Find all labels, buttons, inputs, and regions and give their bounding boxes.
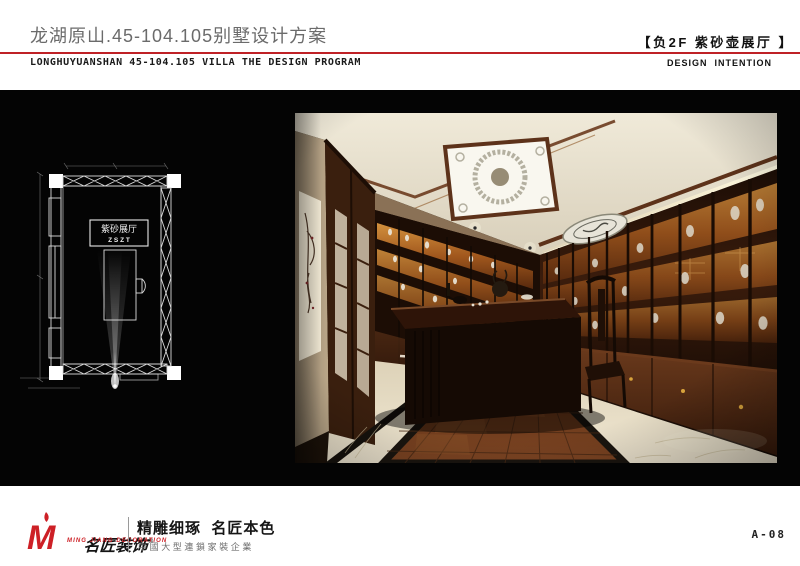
photo-left-shade (295, 113, 321, 463)
section-subtitle: DESIGN INTENTION (667, 58, 772, 68)
plan-room-label-code: Z S Z T (108, 237, 130, 244)
dimension-lines (20, 163, 168, 388)
brand-slogan: 精雕细琢 名匠本色 (137, 517, 275, 538)
brand-slogan-sub: 中國大型連鎖家裝企業 (138, 540, 254, 553)
page-subtitle: LONGHUYUANSHAN 45-104.105 VILLA THE DESI… (30, 57, 361, 68)
plan-room-label-cn: 紫砂展厅 (101, 223, 137, 234)
rendering-illustration (295, 113, 777, 463)
presentation-page: 龙湖原山.45-104.105别墅设计方案 LONGHUYUANSHAN 45-… (0, 0, 800, 566)
header-divider-rule (0, 52, 800, 54)
photo-vignette (295, 113, 777, 463)
logo-monogram: M (27, 519, 56, 555)
floor-plan-drawing: 紫砂展厅 Z S Z T (20, 150, 280, 450)
content-band: 紫砂展厅 Z S Z T (0, 90, 800, 486)
page-title: 龙湖原山.45-104.105别墅设计方案 (30, 22, 327, 48)
footer-divider (128, 517, 129, 552)
floor-plan: 紫砂展厅 Z S Z T (20, 150, 280, 450)
section-title: 【负2F 紫砂壶展厅 】 (638, 32, 794, 51)
camera-view-cone (97, 250, 131, 389)
interior-rendering-photo (295, 113, 777, 463)
brand-logo: M (26, 511, 68, 555)
page-number: A-08 (752, 528, 787, 541)
plan-room-label: 紫砂展厅 Z S Z T (90, 220, 148, 246)
